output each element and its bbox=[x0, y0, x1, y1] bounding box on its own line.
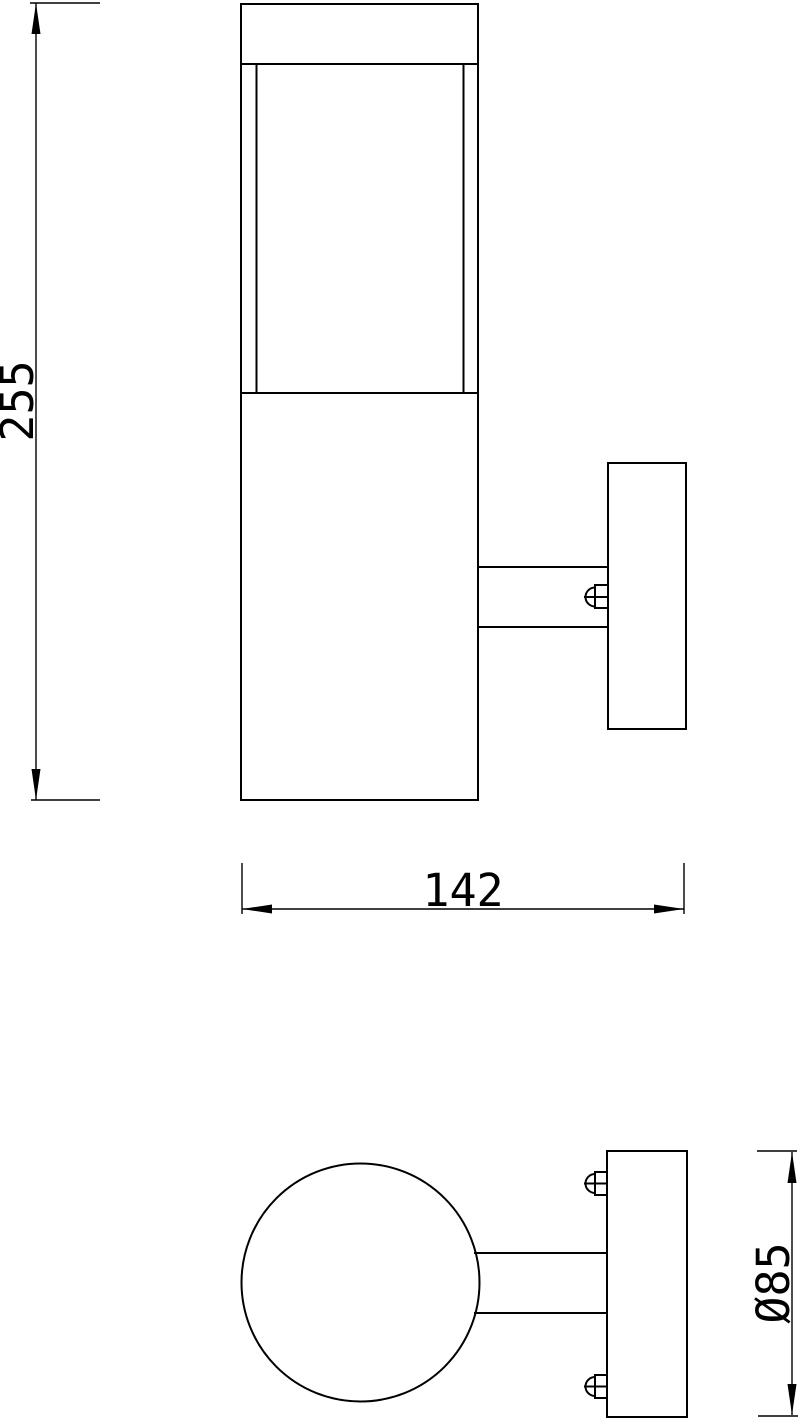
height-arrow-down bbox=[32, 769, 41, 800]
wall-plate-side bbox=[608, 463, 686, 729]
diameter-arrow-up bbox=[788, 1152, 797, 1183]
height-arrow-up bbox=[32, 3, 41, 34]
dimensions-layer: 255142Ø85 bbox=[0, 3, 800, 1416]
top-view bbox=[242, 1151, 688, 1417]
side-view bbox=[241, 4, 686, 800]
width-arrow-left bbox=[242, 905, 272, 914]
lamp-body bbox=[241, 64, 478, 800]
width-arrow-right bbox=[654, 905, 684, 914]
lamp-cap bbox=[241, 4, 478, 64]
diameter-arrow-down bbox=[788, 1384, 797, 1415]
wall-lamp-technical-drawing: 255142Ø85 bbox=[0, 0, 800, 1420]
wall-plate-top bbox=[607, 1151, 687, 1417]
drawing-canvas: 255142Ø85 bbox=[0, 0, 800, 1420]
lamp-body-circle bbox=[242, 1164, 480, 1402]
height-dim-text: 255 bbox=[0, 360, 44, 441]
width-dim-text: 142 bbox=[422, 864, 503, 917]
diameter-dim-text: Ø85 bbox=[747, 1242, 800, 1323]
